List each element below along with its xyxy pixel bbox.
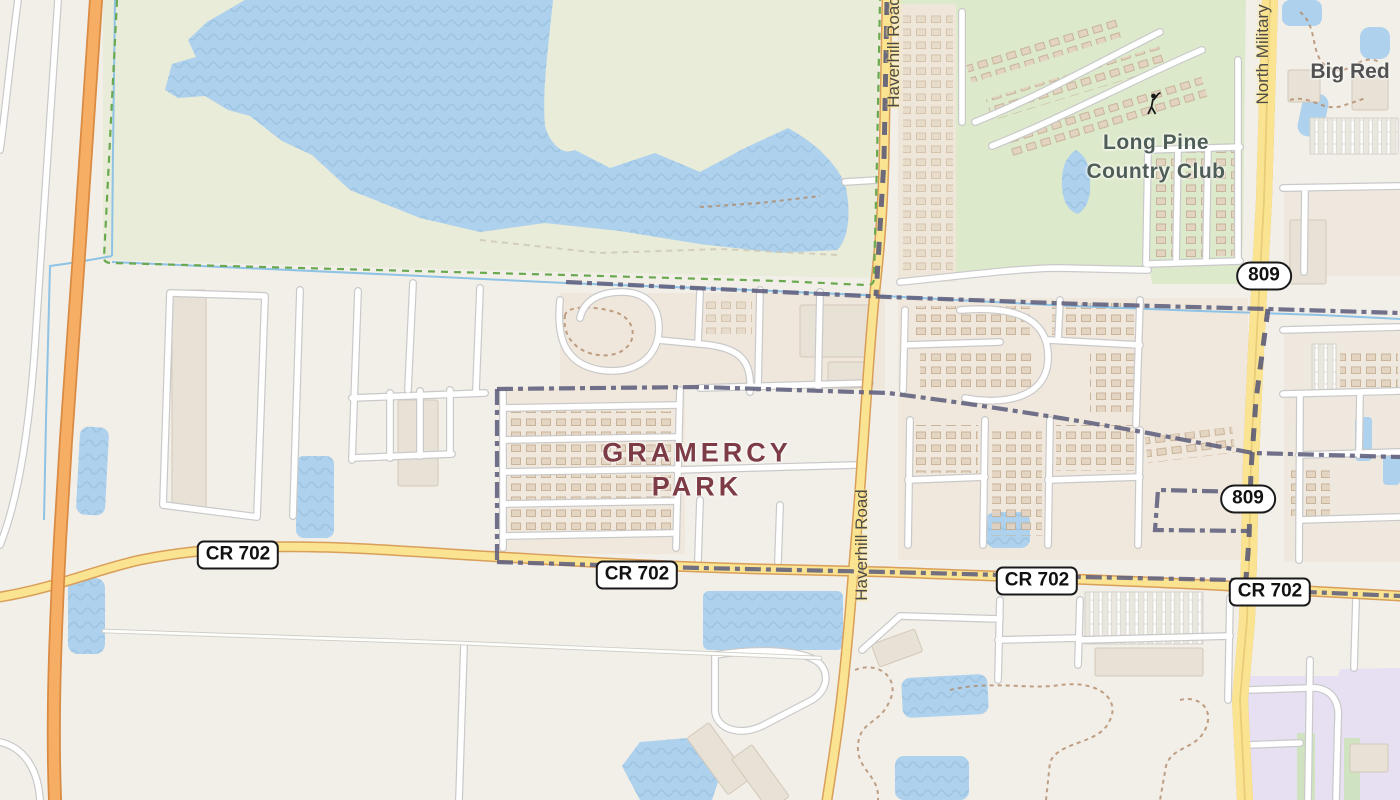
- map-layers: [0, 0, 1400, 800]
- route-shield-cr702-center: CR 702: [596, 561, 678, 590]
- route-shield-cr702-far-east: CR 702: [1229, 578, 1311, 607]
- route-shield-cr702-west: CR 702: [197, 541, 279, 570]
- route-shield-cr702-east: CR 702: [996, 567, 1078, 596]
- route-shield-809-north: 809: [1236, 262, 1292, 291]
- route-shield-809-south: 809: [1220, 485, 1276, 514]
- map-canvas[interactable]: GRAMERCY PARK Long Pine Country Club Big…: [0, 0, 1400, 800]
